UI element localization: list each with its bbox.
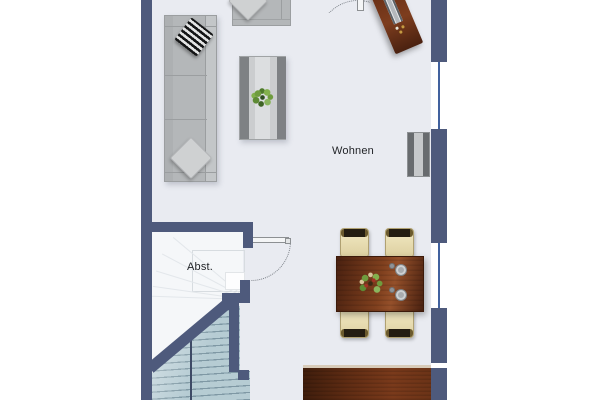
dining-chair — [385, 228, 414, 258]
dining-chair — [340, 228, 369, 258]
top-door-leaf — [357, 0, 364, 11]
wall-right-1 — [431, 0, 447, 62]
stair-railing-line — [190, 340, 192, 400]
floor-patch — [239, 303, 250, 371]
coffee-table-band — [240, 57, 249, 139]
chair-backrest — [386, 329, 413, 337]
wall-right-4 — [431, 368, 447, 400]
wall-right-2 — [431, 129, 447, 243]
place-setting-plate — [395, 264, 407, 276]
tv-lowboard — [407, 132, 430, 177]
floor-plan: Wohnen Abst. — [0, 0, 600, 400]
table-centerpiece-plant — [357, 270, 384, 297]
window — [438, 243, 440, 308]
chair-backrest — [386, 229, 413, 237]
sofa-seam — [165, 75, 207, 76]
decor-dot — [395, 26, 399, 30]
wall-right-3 — [431, 308, 447, 363]
wall-storage-top — [152, 222, 253, 232]
tv-lowboard-band — [423, 133, 429, 176]
wall-left — [141, 0, 152, 400]
room-label-storage: Abst. — [187, 261, 213, 273]
place-setting-plate — [395, 289, 407, 301]
armchair-seam — [281, 0, 282, 19]
decor-dot — [399, 30, 403, 34]
arc-line — [251, 241, 291, 281]
door-hinge — [285, 238, 291, 244]
sofa-seam — [165, 119, 207, 120]
chair-backrest — [341, 329, 368, 337]
place-setting-cup — [389, 287, 395, 293]
wall-stair-foot — [238, 370, 249, 380]
plant — [251, 86, 274, 109]
dining-chair — [385, 308, 414, 338]
dining-chair — [340, 308, 369, 338]
wall-stair-corner-up — [240, 280, 250, 303]
armchair-seam — [233, 19, 290, 20]
tv-lowboard-band — [408, 133, 414, 176]
window — [438, 62, 440, 129]
decor-dot — [401, 25, 405, 29]
wall-stair-right — [229, 303, 239, 372]
bottom-sideboard — [303, 368, 431, 400]
wall-door-stub — [243, 232, 253, 248]
storage-door-leaf — [251, 237, 289, 243]
chair-backrest — [341, 229, 368, 237]
coffee-table-band — [277, 57, 286, 139]
room-label-living: Wohnen — [332, 145, 374, 157]
storage-door-swing-arc — [251, 241, 292, 283]
